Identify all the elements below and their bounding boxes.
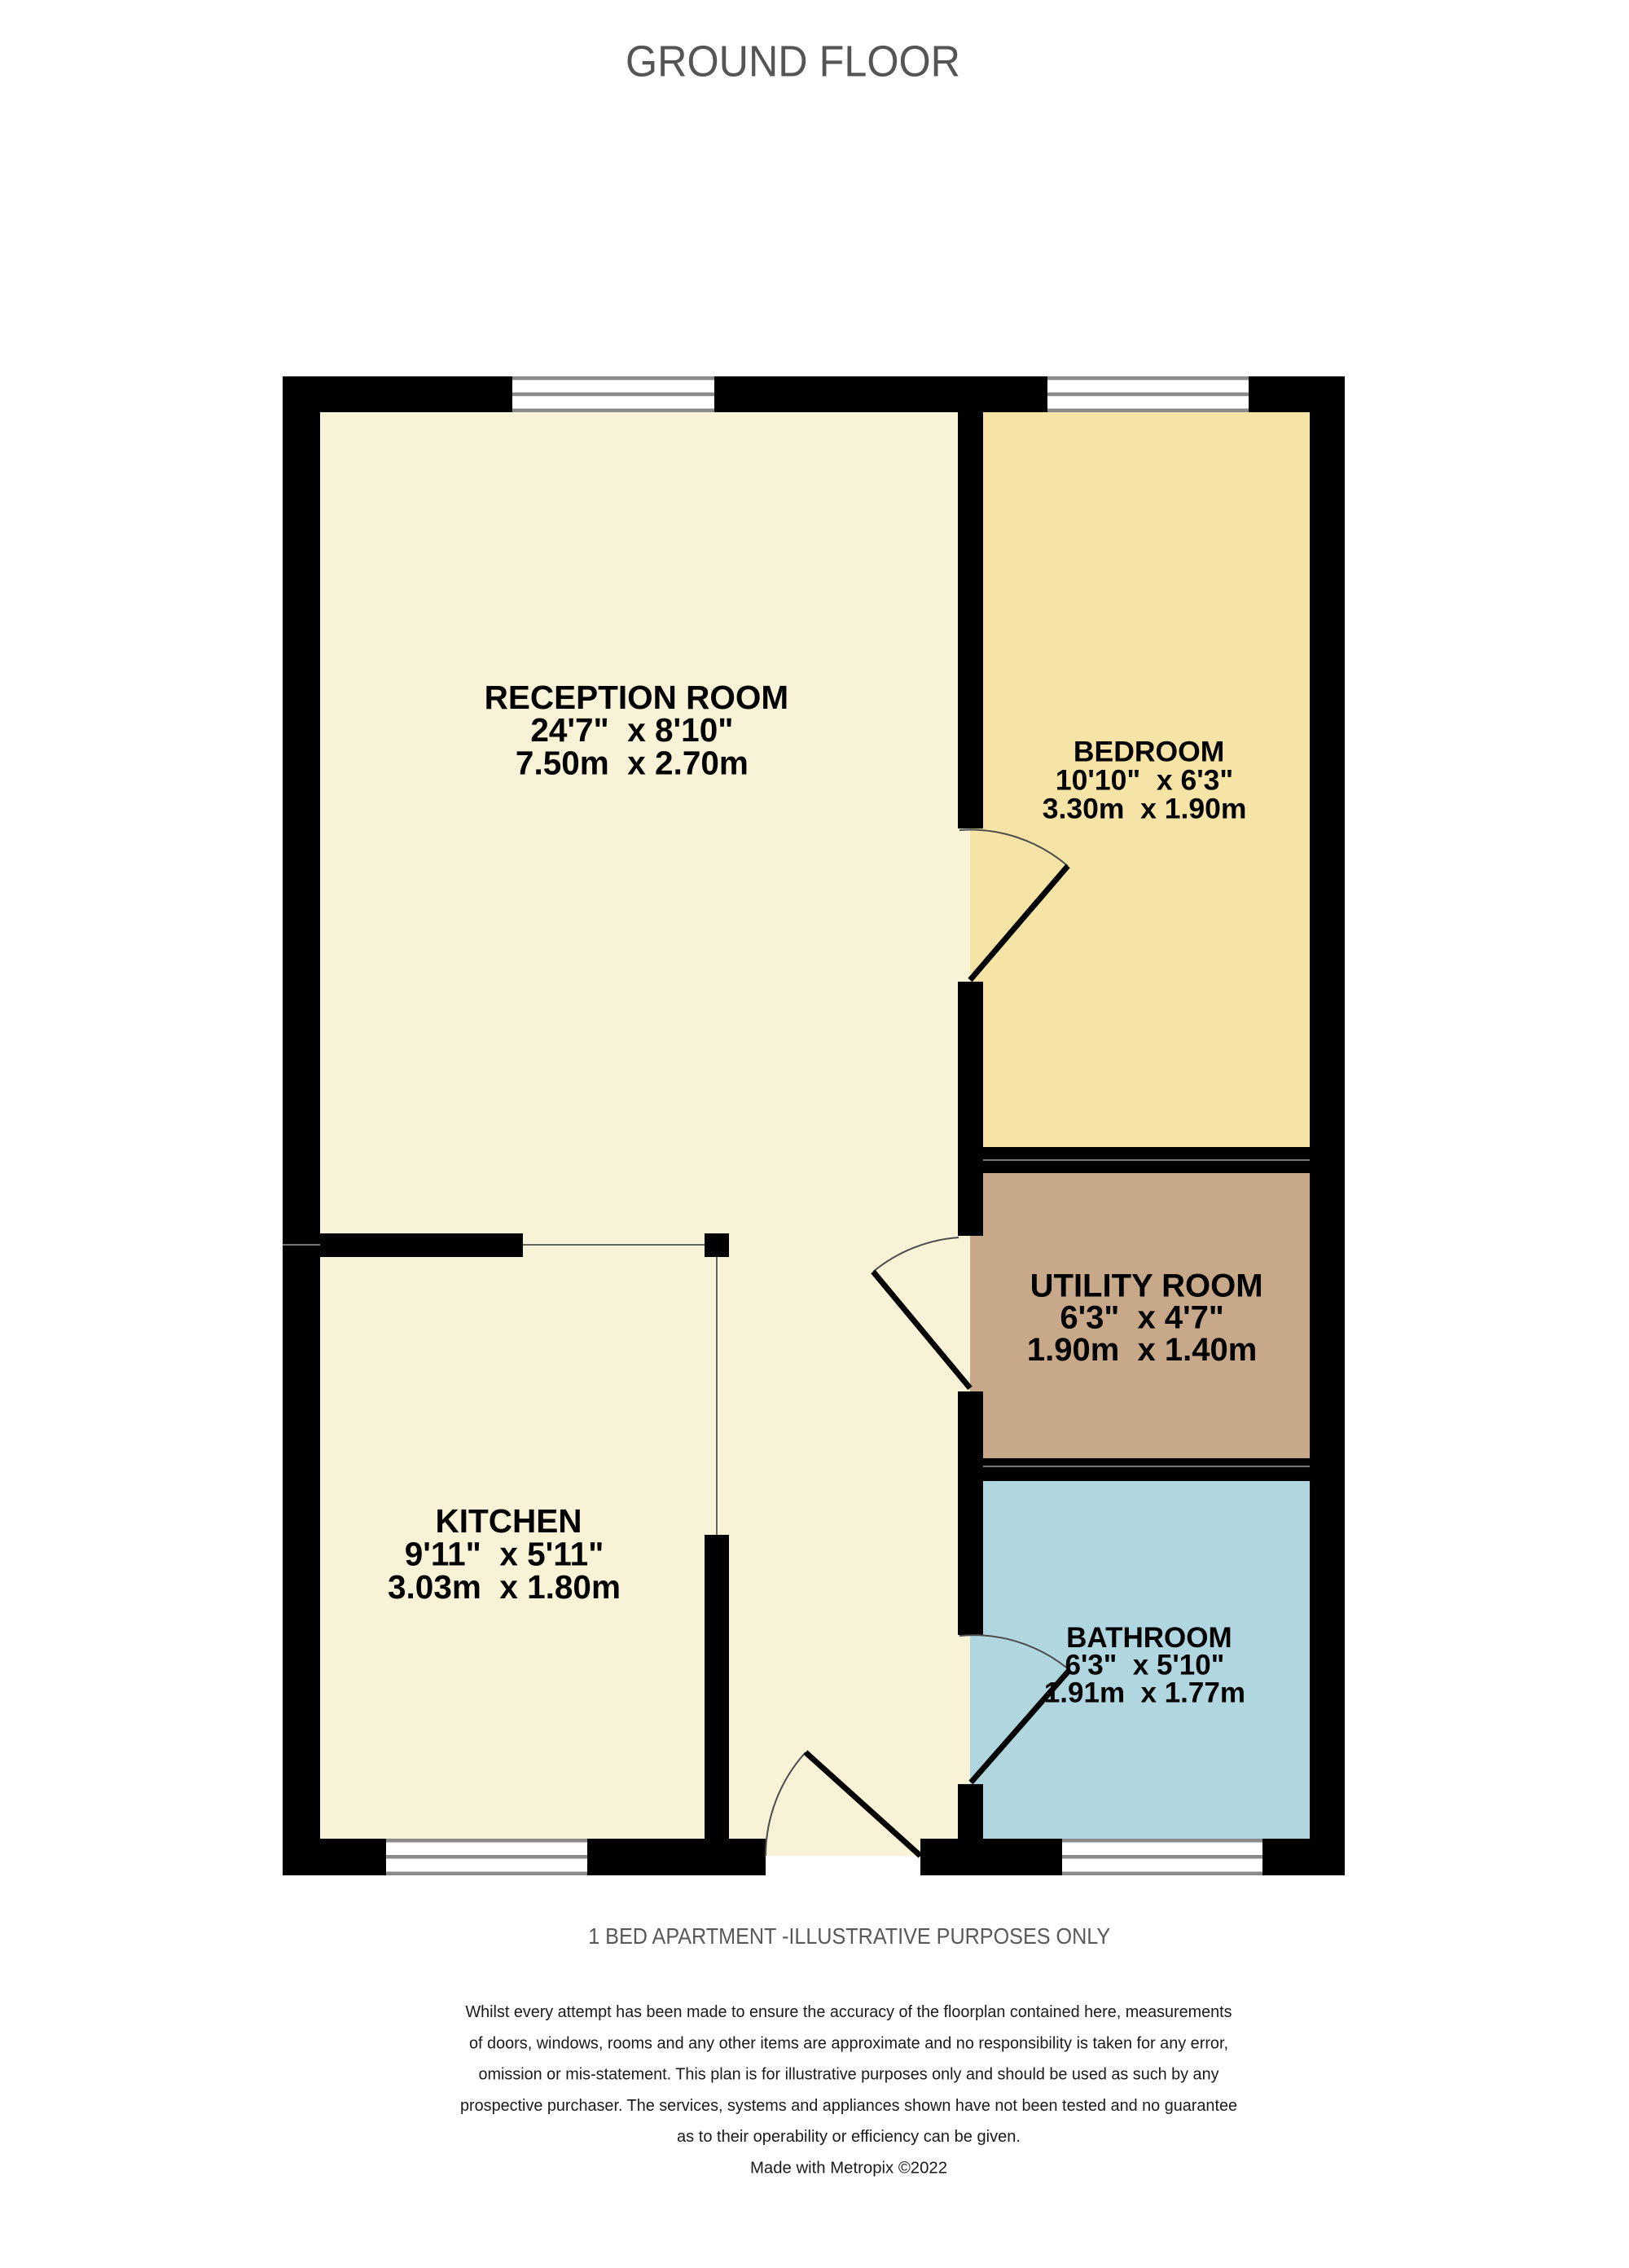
svg-text:prospective purchaser. The ser: prospective purchaser. The services, sys… [460,2097,1237,2115]
svg-text:Whilst every attempt has been: Whilst every attempt has been made to en… [466,2003,1232,2021]
svg-text:Made with Metropix ©2022: Made with Metropix ©2022 [750,2159,947,2177]
svg-text:GROUND FLOOR: GROUND FLOOR [626,37,960,86]
svg-text:3.30m x 1.90m: 3.30m x 1.90m [1043,793,1247,825]
svg-text:omission or mis-statement. Thi: omission or mis-statement. This plan is … [479,2066,1219,2084]
svg-text:of doors, windows, rooms and a: of doors, windows, rooms and any other i… [469,2034,1228,2052]
svg-text:10'10" x 6'3": 10'10" x 6'3" [1056,764,1233,797]
svg-text:BEDROOM: BEDROOM [1074,736,1224,768]
svg-text:3.03m x 1.80m: 3.03m x 1.80m [388,1568,621,1606]
svg-text:1.91m x 1.77m: 1.91m x 1.77m [1044,1677,1245,1709]
svg-text:1.90m x 1.40m: 1.90m x 1.40m [1027,1332,1257,1368]
svg-text:7.50m x 2.70m: 7.50m x 2.70m [516,744,749,781]
svg-text:as to their operability or eff: as to their operability or efficiency ca… [677,2128,1021,2146]
svg-text:KITCHEN: KITCHEN [436,1502,582,1540]
svg-text:1 BED APARTMENT -ILLUSTRATIVE: 1 BED APARTMENT -ILLUSTRATIVE PURPOSES O… [588,1923,1110,1949]
svg-text:UTILITY ROOM: UTILITY ROOM [1030,1268,1263,1303]
svg-text:RECEPTION ROOM: RECEPTION ROOM [485,679,789,716]
svg-text:9'11" x 5'11": 9'11" x 5'11" [405,1536,604,1573]
svg-text:24'7" x 8'10": 24'7" x 8'10" [530,711,733,749]
svg-text:6'3" x 4'7": 6'3" x 4'7" [1060,1300,1224,1336]
